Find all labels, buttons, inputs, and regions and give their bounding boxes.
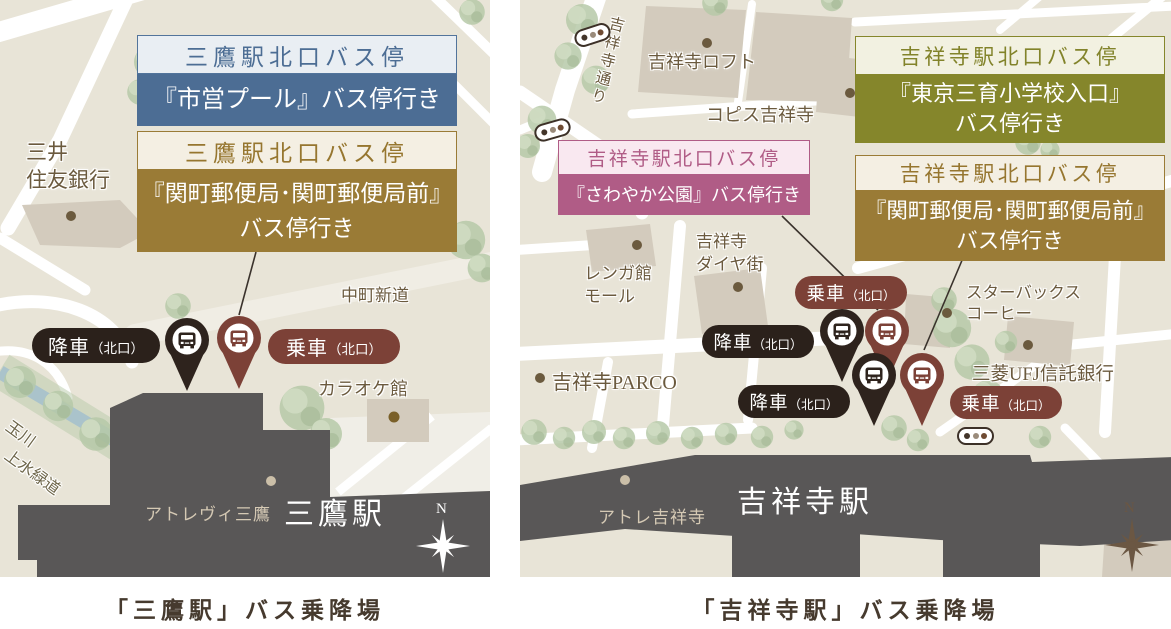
destination-line: バス停行き (855, 226, 1165, 256)
pill-sublabel: （北口） (789, 394, 839, 413)
place-label-starbucks: スターバックス コーヒー (966, 282, 1081, 324)
pill-label: 降車 (48, 331, 90, 360)
destination-line: バス停行き (137, 211, 457, 246)
destination-line: 『市営プール』バス停行き (137, 83, 457, 117)
busstop-destination: 『さわやか公園』バス停行き (558, 175, 810, 215)
place-label-coppice-kichijoji: コピス吉祥寺 (706, 101, 814, 127)
destination-line: 『関町郵便局･関町郵便局前』 (855, 196, 1165, 226)
traffic-light-dot (549, 126, 556, 133)
station-building-label-atrevie: アトレヴィ三鷹 (145, 500, 271, 525)
label-line: スターバックス (966, 282, 1081, 303)
label-line: 住友銀行 (26, 166, 110, 194)
place-label-karaoke-kan: カラオケ館 (318, 375, 408, 401)
label-line: コーヒー (966, 303, 1081, 324)
busstop-info-box-saniku: 吉祥寺駅北口バス停 『東京三育小学校入口』 バス停行き (855, 36, 1165, 143)
traffic-light-dot (964, 433, 970, 439)
traffic-light-dot (541, 129, 548, 136)
traffic-light-dot (589, 31, 597, 39)
alight-bus-pin (163, 314, 211, 392)
destination-line: 『東京三育小学校入口』 (855, 79, 1165, 109)
station-name-label: 吉祥寺駅 (737, 477, 873, 521)
traffic-light-icon (957, 427, 994, 445)
kichijoji-map: 吉祥寺駅北口バス停 『東京三育小学校入口』 バス停行き 吉祥寺駅北口バス停 『さ… (520, 0, 1171, 577)
label-line: 三井 (26, 138, 110, 166)
destination-line: バス停行き (855, 109, 1165, 139)
alight-pill: 降車（北口） (32, 328, 160, 363)
pill-label: 乗車 (286, 332, 328, 361)
busstop-info-box-sawayaka: 吉祥寺駅北口バス停 『さわやか公園』バス停行き (558, 140, 810, 215)
pill-sublabel: （北口） (846, 285, 896, 304)
place-label-kichijoji-parco: 吉祥寺PARCO (552, 366, 677, 395)
station-name-label: 三鷹駅 (284, 489, 386, 533)
busstop-info-box-pool: 三鷹駅北口バス停 『市営プール』バス停行き (137, 35, 457, 126)
busstop-destination: 『東京三育小学校入口』 バス停行き (855, 75, 1165, 143)
traffic-light-dot (973, 433, 979, 439)
compass-rose-icon (414, 517, 472, 575)
pill-sublabel: （北口） (328, 338, 382, 358)
alight-pill: 降車（北口） (738, 385, 850, 418)
place-label-mufg-trust-bank: 三菱UFJ信託銀行 (972, 360, 1114, 386)
pill-sublabel: （北口） (90, 337, 144, 357)
destination-line: 『関町郵便局･関町郵便局前』 (137, 176, 457, 211)
busstop-name: 三鷹駅北口バス停 (137, 35, 457, 74)
station-building-label-atre: アトレ吉祥寺 (598, 503, 706, 528)
busstop-name: 吉祥寺駅北口バス停 (558, 140, 810, 175)
label-line: ダイヤ街 (696, 253, 764, 276)
traffic-light-dot (557, 124, 564, 131)
pill-label: 乗車 (961, 390, 1000, 416)
board-pill: 乗車（北口） (950, 386, 1062, 419)
busstop-name: 吉祥寺駅北口バス停 (855, 36, 1165, 75)
busstop-info-box-sekimachi: 三鷹駅北口バス停 『関町郵便局･関町郵便局前』 バス停行き (137, 131, 457, 252)
alight-pill: 降車（北口） (702, 325, 814, 358)
busstop-destination: 『関町郵便局･関町郵便局前』 バス停行き (855, 191, 1165, 261)
busstop-name: 三鷹駅北口バス停 (137, 131, 457, 170)
compass-n-label: N (1124, 500, 1136, 517)
place-label-rengakan-mall: レンガ館 モール (584, 262, 652, 308)
alight-bus-pin (850, 349, 898, 427)
place-label-diyagai: 吉祥寺 ダイヤ街 (696, 230, 764, 276)
label-line: 吉祥寺 (696, 230, 764, 253)
pill-label: 降車 (713, 329, 752, 355)
busstop-destination: 『市営プール』バス停行き (137, 74, 457, 126)
destination-line: 『さわやか公園』バス停行き (558, 182, 810, 208)
board-pill: 乗車（北口） (268, 329, 400, 364)
label-line: レンガ館 (584, 262, 652, 285)
traffic-light-dot (981, 433, 987, 439)
compass-rose-icon (1103, 516, 1161, 574)
traffic-light-dot (597, 29, 605, 37)
board-bus-pin (898, 349, 946, 427)
traffic-light-dot (581, 34, 589, 42)
place-label-nakacho-shindo: 中町新道 (341, 281, 409, 306)
bus-stop-guide-maps: 三鷹駅北口バス停 『市営プール』バス停行き 三鷹駅北口バス停 『関町郵便局･関町… (0, 0, 1171, 629)
busstop-destination: 『関町郵便局･関町郵便局前』 バス停行き (137, 170, 457, 252)
board-bus-pin (215, 312, 263, 390)
pill-sublabel: （北口） (753, 334, 803, 353)
pill-label: 降車 (749, 389, 788, 415)
mitaka-map-caption: 「三鷹駅」バス乗降場 (0, 591, 490, 625)
place-label-smbc-bank: 三井 住友銀行 (26, 138, 110, 194)
busstop-info-box-sekimachi: 吉祥寺駅北口バス停 『関町郵便局･関町郵便局前』 バス停行き (855, 155, 1165, 261)
place-label-kichijoji-loft: 吉祥寺ロフト (648, 48, 756, 74)
busstop-name: 吉祥寺駅北口バス停 (855, 155, 1165, 191)
pill-sublabel: （北口） (1001, 395, 1051, 414)
compass-n-label: N (436, 501, 448, 518)
mitaka-map: 三鷹駅北口バス停 『市営プール』バス停行き 三鷹駅北口バス停 『関町郵便局･関町… (0, 0, 490, 577)
label-line: モール (584, 285, 652, 308)
kichijoji-map-caption: 「吉祥寺駅」バス乗降場 (520, 591, 1171, 625)
pill-label: 乗車 (806, 280, 845, 306)
